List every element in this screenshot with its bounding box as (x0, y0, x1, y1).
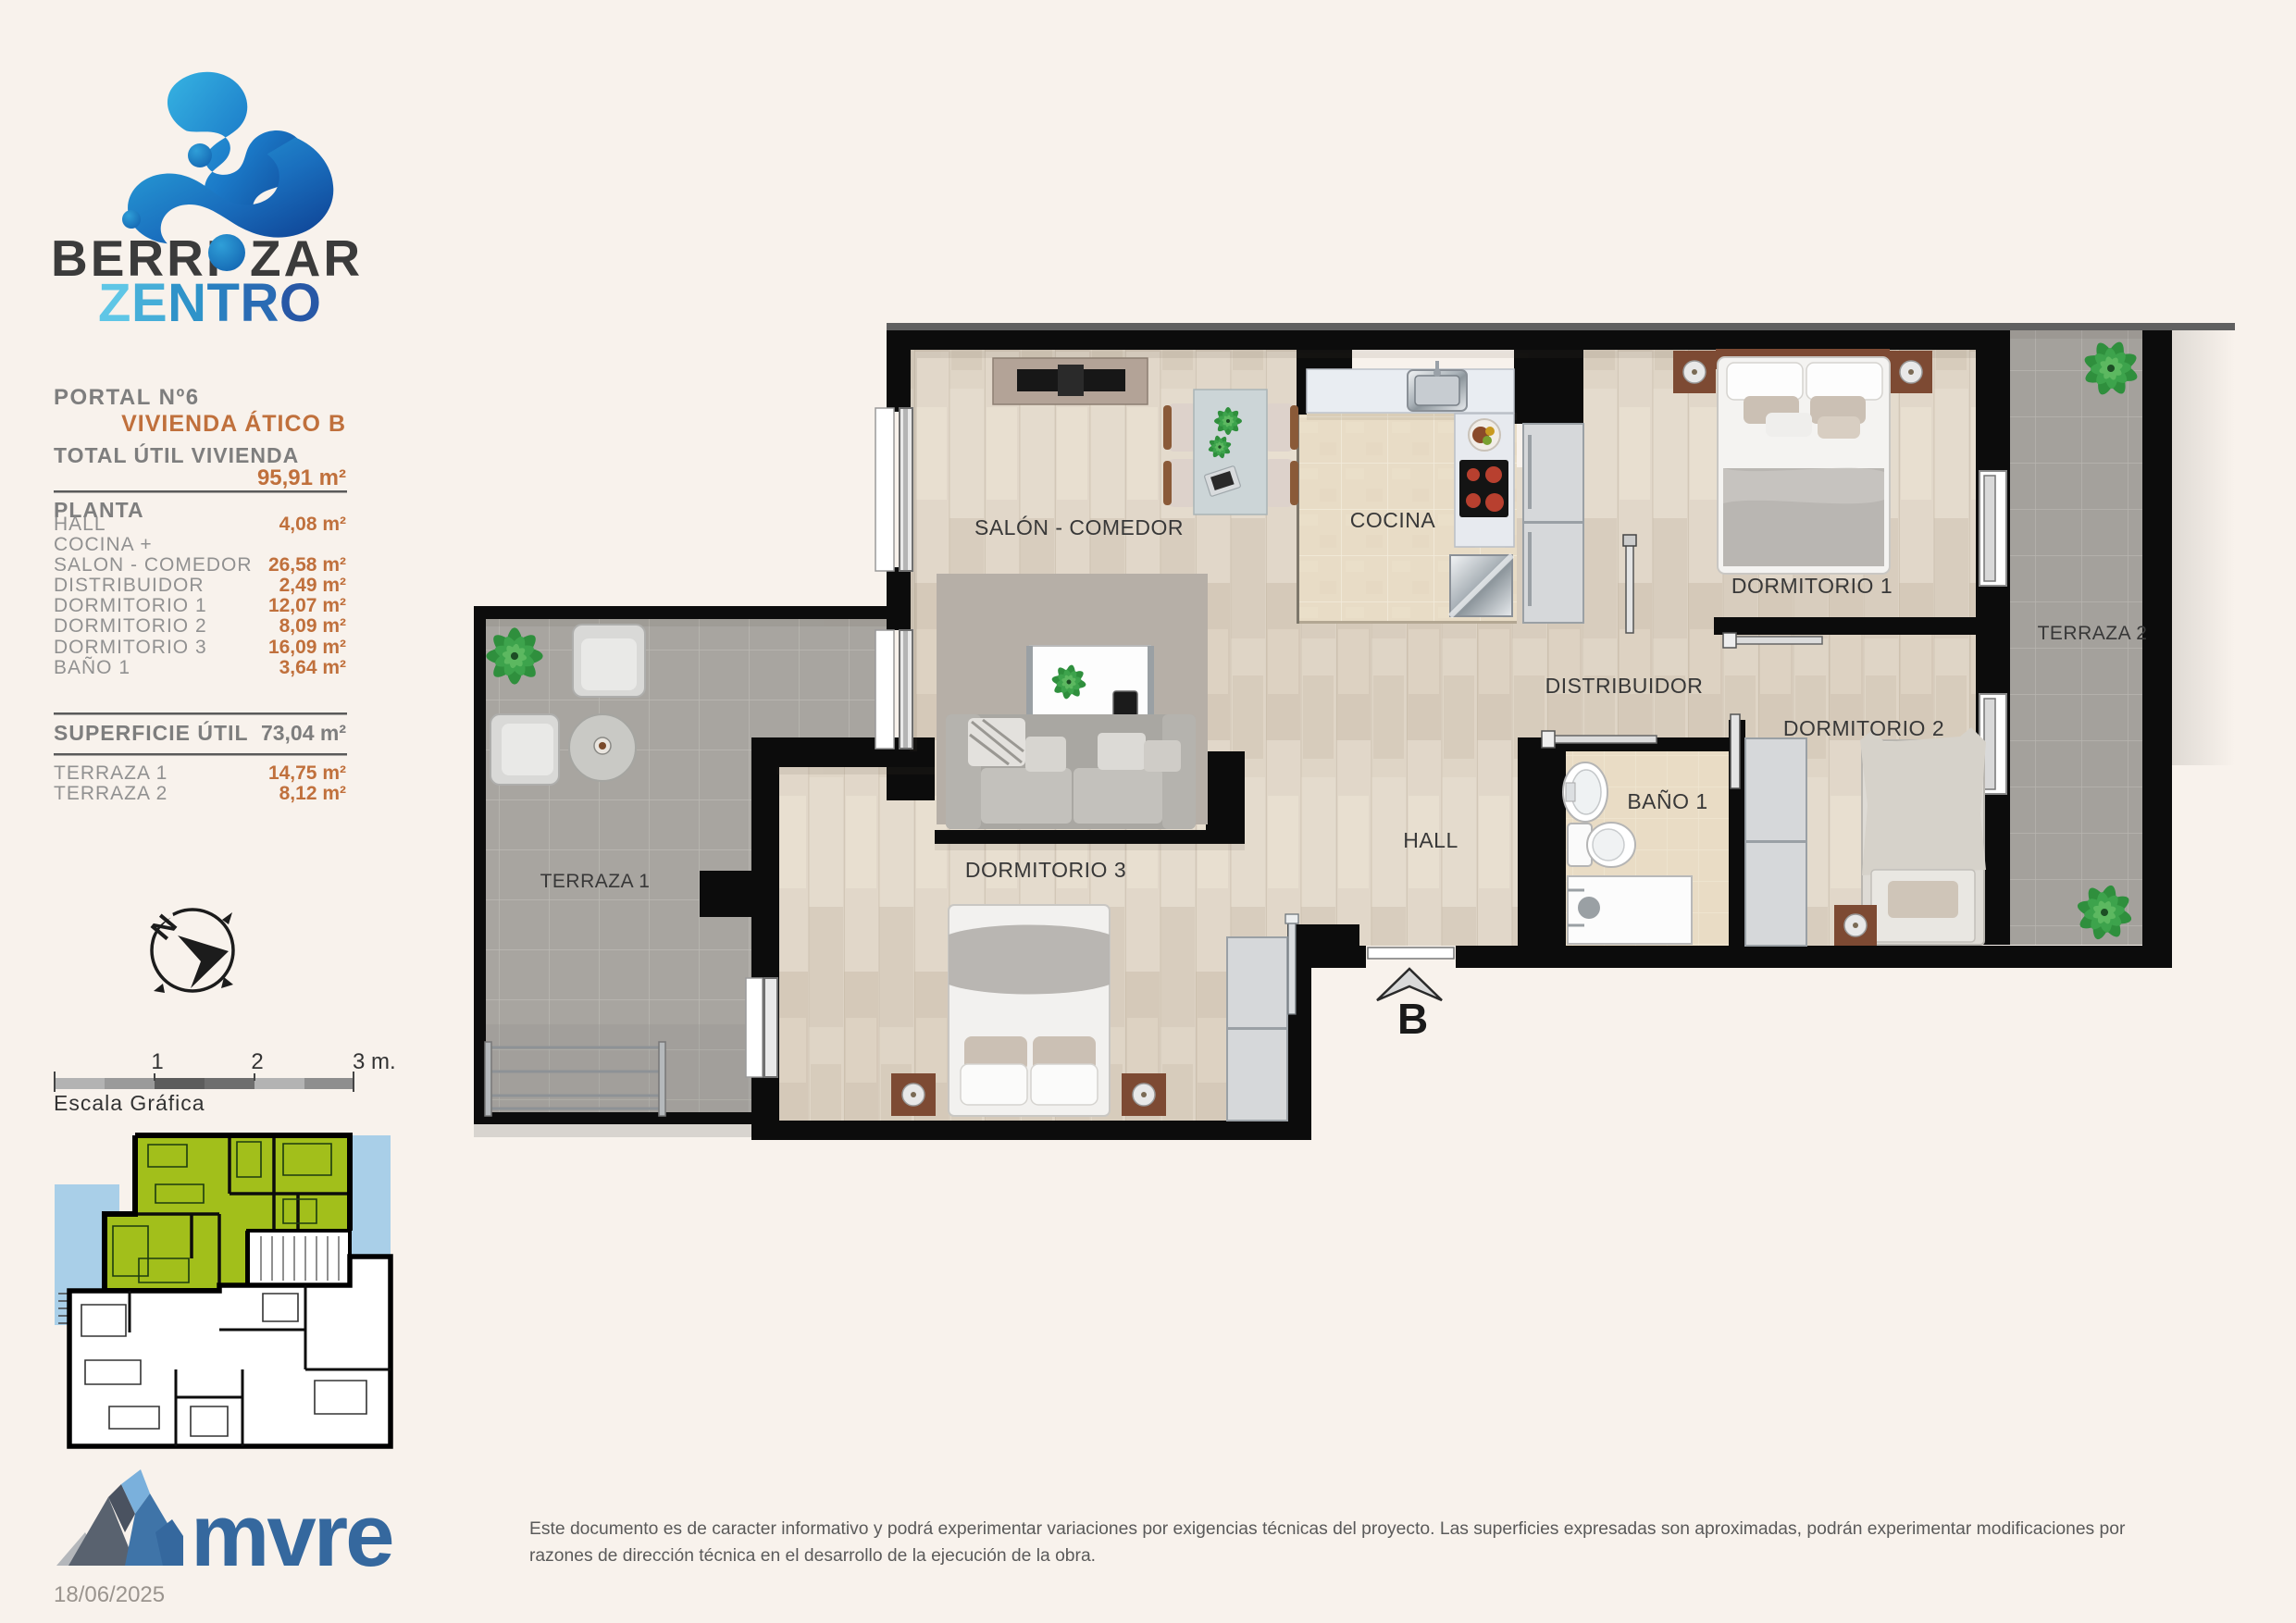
svg-text:COCINA: COCINA (1350, 508, 1436, 532)
svg-text:3 m.: 3 m. (353, 1049, 396, 1074)
svg-text:Escala Gráfica: Escala Gráfica (54, 1091, 205, 1115)
svg-text:1: 1 (151, 1049, 163, 1074)
svg-text:mvre: mvre (191, 1486, 392, 1585)
svg-text:DORMITORIO 3: DORMITORIO 3 (54, 637, 207, 658)
svg-text:TERRAZA 2: TERRAZA 2 (2038, 623, 2148, 644)
svg-text:14,75 m²: 14,75 m² (268, 762, 346, 784)
svg-text:SALON - COMEDOR: SALON - COMEDOR (54, 554, 253, 576)
svg-text:DISTRIBUIDOR: DISTRIBUIDOR (54, 575, 205, 596)
svg-text:SALÓN - COMEDOR: SALÓN - COMEDOR (974, 515, 1184, 539)
svg-text:DORMITORIO 2: DORMITORIO 2 (54, 615, 207, 637)
svg-text:95,91 m²: 95,91 m² (257, 465, 346, 490)
svg-text:B: B (1397, 995, 1428, 1043)
svg-text:18/06/2025: 18/06/2025 (54, 1582, 165, 1607)
svg-text:PORTAL Nº6: PORTAL Nº6 (54, 385, 200, 410)
svg-text:73,04 m²: 73,04 m² (261, 721, 346, 745)
svg-text:16,09 m²: 16,09 m² (268, 637, 346, 658)
svg-text:HALL: HALL (1403, 828, 1458, 852)
svg-text:DORMITORIO 1: DORMITORIO 1 (1731, 574, 1893, 598)
svg-text:SUPERFICIE ÚTIL: SUPERFICIE ÚTIL (54, 720, 249, 745)
svg-text:4,08 m²: 4,08 m² (279, 514, 346, 535)
svg-text:2: 2 (251, 1049, 263, 1074)
svg-text:BAÑO 1: BAÑO 1 (1627, 789, 1707, 813)
svg-text:12,07 m²: 12,07 m² (268, 595, 346, 616)
svg-text:VIVIENDA ÁTICO B: VIVIENDA ÁTICO B (121, 410, 346, 437)
svg-text:DORMITORIO 3: DORMITORIO 3 (965, 858, 1126, 882)
svg-text:COCINA +: COCINA + (54, 534, 153, 555)
svg-text:ZENTRO: ZENTRO (98, 273, 321, 333)
svg-text:Este documento es de caracter: Este documento es de caracter informativ… (529, 1519, 2126, 1539)
svg-text:DORMITORIO 1: DORMITORIO 1 (54, 595, 207, 616)
svg-text:DORMITORIO 2: DORMITORIO 2 (1783, 716, 1944, 740)
svg-text:TERRAZA 1: TERRAZA 1 (540, 871, 651, 892)
svg-text:2,49 m²: 2,49 m² (279, 575, 346, 596)
svg-text:HALL: HALL (54, 514, 106, 535)
svg-text:TERRAZA 2: TERRAZA 2 (54, 783, 168, 804)
svg-text:3,64 m²: 3,64 m² (279, 657, 346, 678)
svg-text:TOTAL ÚTIL VIVIENDA: TOTAL ÚTIL VIVIENDA (54, 442, 299, 467)
svg-text:8,09 m²: 8,09 m² (279, 615, 346, 637)
svg-text:BAÑO 1: BAÑO 1 (54, 656, 130, 678)
svg-text:8,12 m²: 8,12 m² (279, 783, 346, 804)
svg-text:26,58 m²: 26,58 m² (268, 554, 346, 576)
svg-text:razones de dirección técnica e: razones de dirección técnica en el desar… (529, 1546, 1096, 1566)
svg-text:DISTRIBUIDOR: DISTRIBUIDOR (1545, 674, 1704, 698)
svg-text:TERRAZA 1: TERRAZA 1 (54, 762, 168, 784)
